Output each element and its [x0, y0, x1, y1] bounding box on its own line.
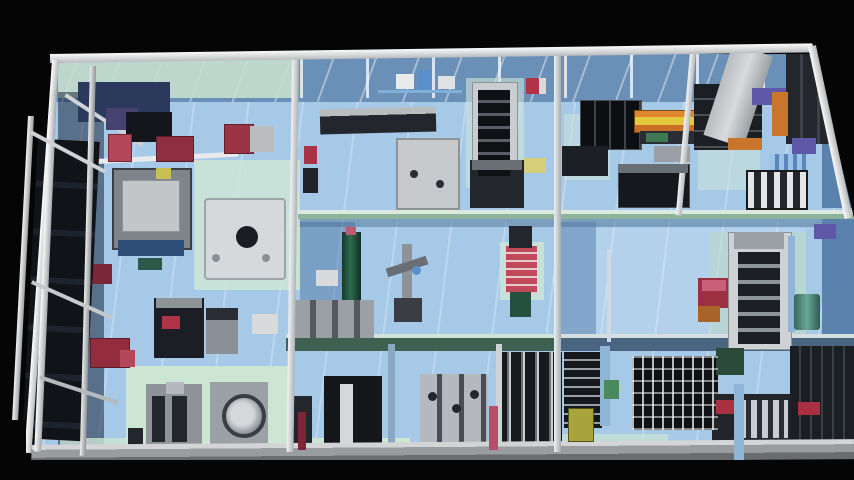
cpu-yellow-chip	[156, 168, 171, 179]
yellow-module	[524, 158, 546, 173]
white-plate-foot-1	[212, 254, 220, 262]
module-rack-black	[580, 100, 642, 150]
printer-top	[472, 160, 522, 170]
teal-pipe	[794, 294, 820, 330]
wardrobe-cabinet	[324, 376, 382, 450]
shelf-modules	[740, 400, 788, 438]
transformer-knob-2	[452, 404, 461, 413]
transformer-knob-1	[428, 392, 437, 401]
side-rack-maroon	[298, 412, 306, 450]
pump-row	[294, 300, 374, 338]
white-plate-core	[236, 226, 258, 248]
purple-module-2	[792, 138, 816, 154]
wall-pipe-line	[378, 90, 462, 93]
duct-beam	[320, 106, 437, 134]
cpu-green-pipe	[138, 258, 162, 270]
wall-horizontal-mid	[298, 210, 854, 219]
tray-stack	[506, 246, 537, 294]
wall-horizontal-mid-face	[298, 219, 854, 227]
dark-green-box	[716, 348, 744, 375]
mid-right-floor-shadow	[560, 222, 596, 336]
tray-stack-top	[509, 226, 532, 248]
bottom-left-black-wedge	[0, 420, 26, 464]
wall-pipe-white-2	[438, 76, 455, 89]
pink-stripe	[489, 406, 498, 450]
motor-knob	[166, 382, 184, 394]
valve-blue-dot	[412, 266, 421, 275]
cpu-machine-panel	[122, 180, 180, 232]
small-red-module	[798, 402, 820, 415]
small-red-box	[304, 146, 317, 164]
control-panel	[396, 138, 460, 210]
gantry-ladder	[738, 252, 780, 344]
wall-vertical-mid	[554, 52, 561, 452]
small-dark-unit	[303, 168, 318, 193]
motor-column-1	[152, 396, 165, 442]
green-screen	[646, 133, 668, 142]
red-valve	[526, 78, 539, 94]
gantry-top-box	[734, 232, 784, 249]
green-clamp	[604, 380, 619, 399]
facility-model-render: 3D cutaway model of an industrial facili…	[0, 0, 854, 480]
red-chip	[120, 350, 135, 367]
low-cabinet	[562, 146, 608, 176]
tray-green-pipe	[510, 292, 531, 317]
dark-drive-label	[162, 316, 180, 329]
blue-pipe-bottom-2	[734, 384, 744, 460]
white-plate-foot-2	[262, 254, 270, 262]
gray-unit-top	[206, 308, 238, 320]
toast-rack	[746, 170, 808, 210]
pump-white-box	[316, 270, 338, 286]
slat-rack	[502, 352, 562, 450]
brown-box	[698, 306, 720, 322]
dial-drum	[222, 394, 266, 438]
valve-robot-pole	[402, 244, 412, 306]
red-box-1	[108, 134, 132, 162]
green-pipe-vertical	[342, 232, 361, 304]
gray-box-1	[250, 126, 274, 152]
white-chip-plate	[252, 314, 278, 334]
red-box-2	[156, 136, 194, 162]
panel-knob-1	[410, 170, 418, 178]
grid-rack-grid	[632, 356, 718, 430]
panel-knob-2	[436, 180, 444, 188]
orange-column	[772, 92, 788, 136]
dark-drive-top	[156, 298, 202, 308]
yellow-unit	[568, 408, 594, 442]
red-unit-top	[702, 280, 726, 291]
wardrobe-stripe	[340, 384, 353, 444]
orange-bar	[728, 138, 762, 150]
motor-column-2	[172, 396, 187, 442]
transformer-knob-3	[470, 390, 479, 399]
thin-pole	[607, 250, 611, 342]
purple-module-3	[814, 224, 836, 239]
wall-vert-bottom-1	[388, 344, 395, 450]
shelf-red-band	[716, 400, 735, 414]
bottom-outer-black	[0, 460, 854, 480]
cpu-blue-band	[118, 240, 184, 256]
dark-rack-top	[618, 164, 688, 173]
white-valve	[539, 78, 546, 94]
right-bottom-panel	[790, 346, 854, 448]
wall-pipe-blue	[418, 70, 432, 91]
green-pipe-tip	[346, 227, 356, 235]
wall-pipe-white	[396, 74, 414, 89]
valve-robot-base	[394, 298, 422, 322]
